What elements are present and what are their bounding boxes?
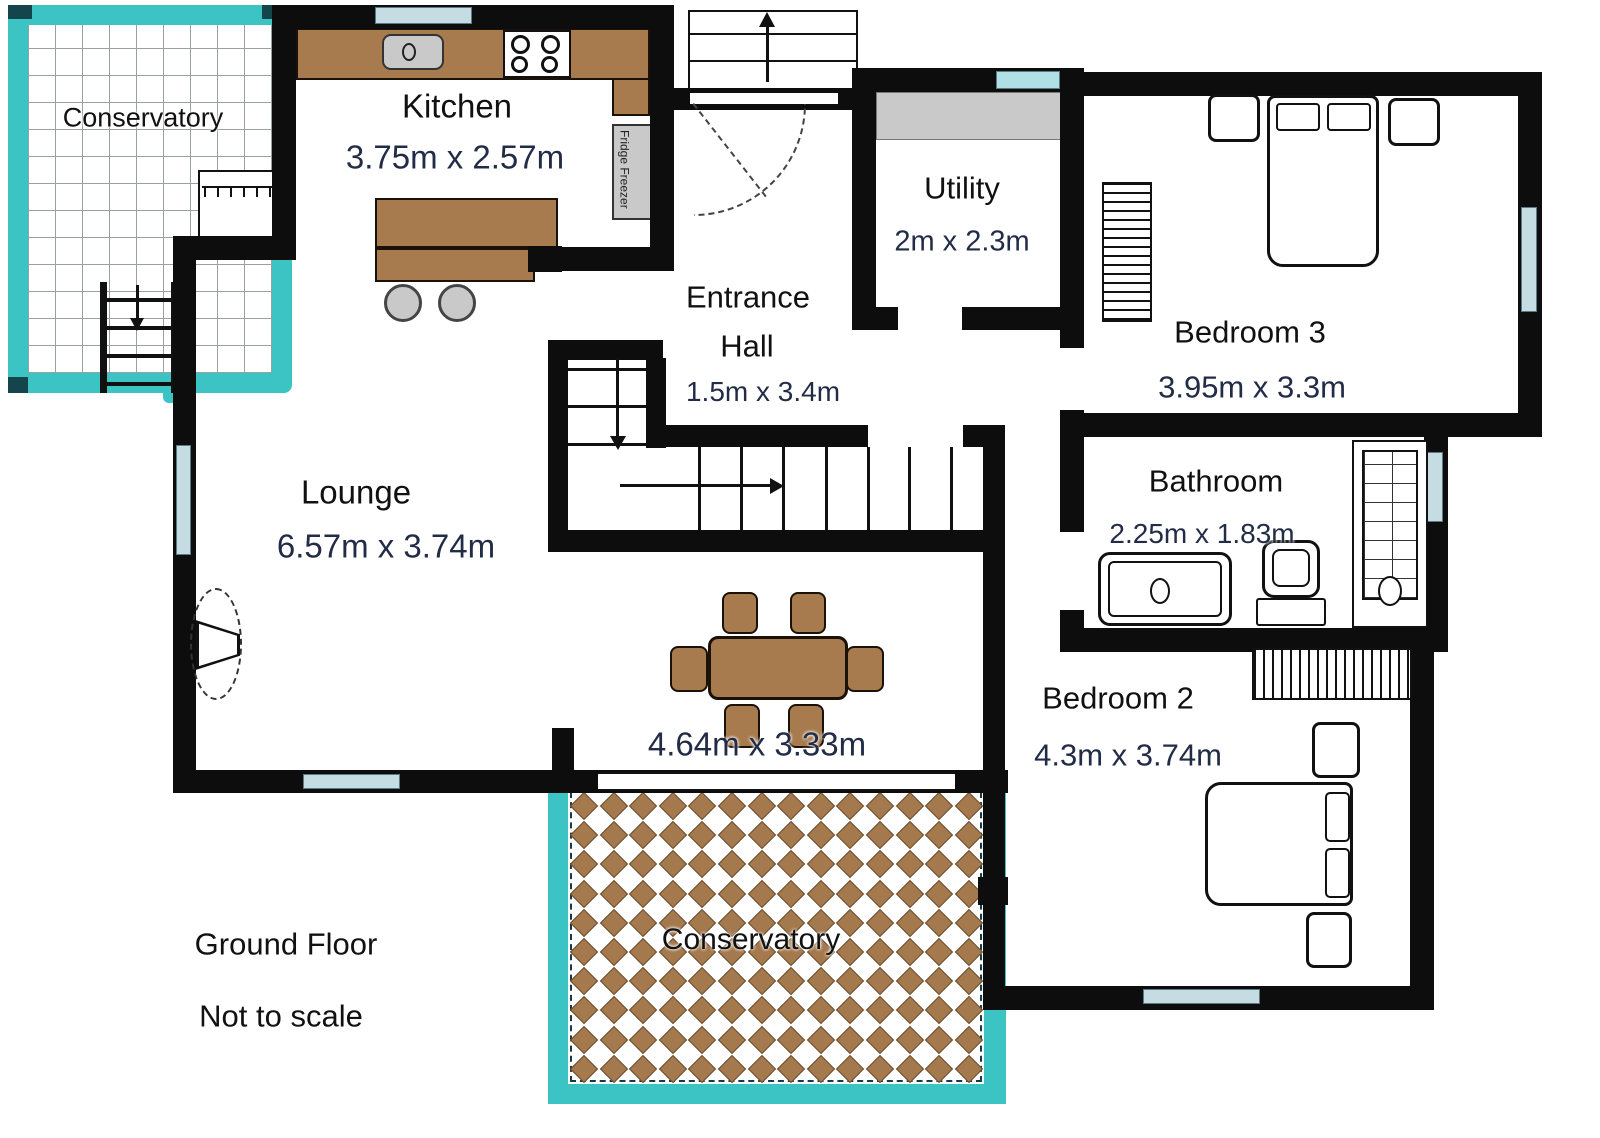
floor-diamond bbox=[777, 1025, 805, 1053]
stool bbox=[438, 284, 476, 322]
floor-diamond bbox=[955, 850, 983, 878]
wall bbox=[272, 5, 674, 29]
floor-diamond bbox=[836, 996, 864, 1024]
floor-diamond bbox=[777, 967, 805, 995]
room-dims-lounge: 6.57m x 3.74m bbox=[277, 530, 495, 563]
floor-diamond bbox=[718, 850, 746, 878]
floor-diamond bbox=[629, 996, 657, 1024]
stairs-down-arrow bbox=[616, 358, 619, 438]
stair-tread bbox=[568, 443, 646, 446]
room-label-conservatory-bottom: Conservatory bbox=[662, 925, 840, 955]
floor-diamond bbox=[688, 1055, 716, 1083]
room-label-bedroom3: Bedroom 3 bbox=[1174, 317, 1326, 348]
stair-tread bbox=[740, 447, 743, 530]
floor-diamond bbox=[807, 1025, 835, 1053]
floor-diamond bbox=[836, 967, 864, 995]
floor-diamond bbox=[955, 1025, 983, 1053]
floor-diamond bbox=[718, 792, 746, 820]
floor-diamond bbox=[895, 967, 923, 995]
room-dims-bedroom3: 3.95m x 3.3m bbox=[1158, 372, 1346, 403]
floor-diamond bbox=[866, 792, 894, 820]
floor-diamond bbox=[659, 821, 687, 849]
arrow-right-icon bbox=[770, 478, 784, 494]
window-bathroom bbox=[1427, 452, 1443, 522]
floor-diamond bbox=[599, 996, 627, 1024]
floor-diamond bbox=[599, 967, 627, 995]
patio-door-opening bbox=[598, 772, 955, 791]
floor-diamond bbox=[688, 821, 716, 849]
porch-tread bbox=[690, 33, 856, 35]
floor-diamond bbox=[688, 996, 716, 1024]
floor-diamond bbox=[599, 938, 627, 966]
floor-diamond bbox=[836, 1055, 864, 1083]
floor-diamond bbox=[570, 996, 598, 1024]
floor-diamond bbox=[866, 996, 894, 1024]
floor-diamond bbox=[807, 850, 835, 878]
room-label-bedroom2: Bedroom 2 bbox=[1042, 683, 1194, 714]
floor-diamond bbox=[629, 792, 657, 820]
dining-table bbox=[708, 636, 848, 700]
stair-tread bbox=[568, 405, 646, 408]
wall bbox=[646, 358, 666, 448]
floor-diamond bbox=[836, 879, 864, 907]
floor-diamond bbox=[629, 1025, 657, 1053]
floor-diamond bbox=[570, 909, 598, 937]
floor-diamond bbox=[895, 850, 923, 878]
floor-diamond bbox=[599, 909, 627, 937]
dining-chair bbox=[790, 592, 826, 634]
room-label-entrance: Entrance bbox=[686, 282, 810, 313]
frame-corner bbox=[8, 5, 32, 19]
floor-diamond bbox=[807, 792, 835, 820]
room-dims-utility: 2m x 2.3m bbox=[894, 228, 1029, 257]
bath-plug bbox=[1150, 578, 1170, 604]
floor-diamond bbox=[599, 821, 627, 849]
floor-diamond bbox=[659, 1025, 687, 1053]
pillow bbox=[1325, 792, 1350, 842]
wall bbox=[548, 340, 568, 552]
wall bbox=[1060, 410, 1084, 532]
front-door-slit bbox=[690, 93, 838, 104]
floor-diamond bbox=[955, 821, 983, 849]
frame-corner bbox=[8, 377, 28, 393]
floor-diamond bbox=[925, 938, 953, 966]
wall bbox=[1410, 652, 1434, 1010]
floor-diamond bbox=[807, 879, 835, 907]
window-lounge-bottom bbox=[303, 774, 400, 789]
arrow-down-icon bbox=[610, 436, 626, 450]
wall bbox=[852, 68, 876, 330]
floor-diamond bbox=[629, 879, 657, 907]
floor-diamond bbox=[570, 879, 598, 907]
room-label-lounge: Lounge bbox=[301, 476, 411, 509]
window-utility bbox=[996, 71, 1060, 89]
wall bbox=[528, 247, 674, 271]
floor-diamond bbox=[955, 909, 983, 937]
floor-diamond bbox=[895, 1025, 923, 1053]
floor-diamond bbox=[599, 792, 627, 820]
floor-diamond bbox=[659, 792, 687, 820]
floor-diamond bbox=[747, 821, 775, 849]
scale-note: Not to scale bbox=[199, 1001, 363, 1032]
floor-diamond bbox=[866, 909, 894, 937]
window-kitchen bbox=[375, 7, 472, 24]
stool bbox=[384, 284, 422, 322]
floor-diamond bbox=[777, 792, 805, 820]
wall bbox=[552, 728, 574, 793]
bedside-table bbox=[1208, 94, 1260, 142]
door-nub bbox=[978, 877, 1008, 905]
floor-diamond bbox=[866, 1025, 894, 1053]
wall bbox=[852, 307, 898, 330]
kitchen-island-lower bbox=[375, 248, 535, 282]
floor-diamond bbox=[570, 967, 598, 995]
floor-diamond bbox=[629, 909, 657, 937]
wall bbox=[548, 340, 663, 360]
floor-diamond bbox=[807, 821, 835, 849]
window-bedroom3 bbox=[1521, 207, 1537, 312]
doorway bbox=[868, 425, 963, 447]
floor-diamond bbox=[925, 850, 953, 878]
room-label-kitchen: Kitchen bbox=[402, 90, 512, 123]
floor-diamond bbox=[599, 1055, 627, 1083]
floor-diamond bbox=[895, 821, 923, 849]
floor-diamond bbox=[688, 1025, 716, 1053]
radiator bbox=[1252, 648, 1412, 700]
porch-tread bbox=[690, 60, 856, 62]
floor-diamond bbox=[659, 1055, 687, 1083]
room-dims-kitchen: 3.75m x 2.57m bbox=[346, 141, 564, 174]
floor-diamond bbox=[925, 996, 953, 1024]
floor-diamond bbox=[747, 1025, 775, 1053]
floor-diamond bbox=[570, 792, 598, 820]
room-label-bathroom: Bathroom bbox=[1149, 466, 1283, 497]
step-tread bbox=[100, 298, 178, 302]
window-lounge-left bbox=[176, 445, 191, 555]
floor-diamond bbox=[629, 967, 657, 995]
window-bedroom2 bbox=[1143, 989, 1260, 1004]
floor-diamond bbox=[895, 938, 923, 966]
floor-diamond bbox=[629, 850, 657, 878]
bedside-table bbox=[1388, 98, 1440, 146]
floor-diamond bbox=[866, 821, 894, 849]
floor-diamond bbox=[688, 792, 716, 820]
floor-diamond bbox=[747, 967, 775, 995]
floor-diamond bbox=[836, 1025, 864, 1053]
wall bbox=[1060, 72, 1542, 96]
radiator bbox=[1102, 182, 1152, 322]
room-dims-dining: 4.64m x 3.33m bbox=[648, 728, 866, 761]
stairs-right-arrow bbox=[620, 484, 772, 487]
floor-diamond bbox=[925, 967, 953, 995]
floor-diamond bbox=[807, 1055, 835, 1083]
floor-diamond bbox=[570, 1025, 598, 1053]
floor-diamond bbox=[955, 938, 983, 966]
floor-diamond bbox=[718, 1025, 746, 1053]
floor-diamond bbox=[807, 967, 835, 995]
floor-diamond bbox=[925, 909, 953, 937]
stair-tread bbox=[867, 447, 870, 530]
floor-diamond bbox=[836, 938, 864, 966]
wall bbox=[548, 530, 985, 552]
kitchen-counter-top bbox=[296, 28, 650, 80]
floor-diamond bbox=[747, 792, 775, 820]
floor-diamond bbox=[747, 1055, 775, 1083]
wall bbox=[272, 5, 296, 241]
kitchen-counter-right bbox=[612, 78, 650, 116]
floor-diamond bbox=[777, 1055, 805, 1083]
stair-tread bbox=[908, 447, 911, 530]
floor-diamond bbox=[895, 909, 923, 937]
floor-diamond bbox=[866, 850, 894, 878]
pillow bbox=[1325, 848, 1350, 898]
kitchen-island bbox=[375, 198, 558, 248]
shower-drain bbox=[1378, 576, 1402, 606]
steps-down-arrow bbox=[136, 285, 139, 319]
floor-diamond bbox=[895, 792, 923, 820]
pillow bbox=[1276, 103, 1320, 131]
stair-tread bbox=[568, 368, 646, 371]
floor-diamond bbox=[599, 850, 627, 878]
dining-chair bbox=[670, 646, 708, 692]
floor-diamond bbox=[659, 850, 687, 878]
floor-diamond bbox=[866, 1055, 894, 1083]
utility-counter bbox=[876, 92, 1066, 140]
floor-diamond bbox=[688, 967, 716, 995]
floor-diamond bbox=[777, 821, 805, 849]
floor-diamond bbox=[895, 879, 923, 907]
floor-diamond bbox=[718, 821, 746, 849]
floor-diamond bbox=[599, 879, 627, 907]
floor-diamond bbox=[688, 879, 716, 907]
room-dims-hall: 1.5m x 3.4m bbox=[686, 378, 840, 406]
floor-diamond bbox=[836, 909, 864, 937]
floor-diamond bbox=[866, 879, 894, 907]
floor-diamond bbox=[599, 1025, 627, 1053]
floor-diamond bbox=[659, 967, 687, 995]
wall bbox=[1084, 413, 1542, 437]
hob-burner bbox=[541, 56, 558, 73]
floor-diamond bbox=[688, 850, 716, 878]
floor-diamond bbox=[718, 879, 746, 907]
floor-diamond bbox=[570, 1055, 598, 1083]
bedside-table bbox=[1306, 912, 1352, 968]
floor-diamond bbox=[925, 821, 953, 849]
pillow bbox=[1327, 103, 1371, 131]
floor-plan: Fridge Freezer bbox=[0, 0, 1600, 1138]
room-label-conservatory-top: Conservatory bbox=[63, 105, 224, 132]
floor-diamond bbox=[570, 821, 598, 849]
floor-diamond bbox=[659, 996, 687, 1024]
stair-tread bbox=[950, 447, 953, 530]
wall bbox=[1060, 68, 1084, 348]
floor-diamond bbox=[836, 821, 864, 849]
step-tread bbox=[100, 382, 178, 386]
floor-diamond bbox=[747, 996, 775, 1024]
wall bbox=[650, 5, 674, 271]
fridge-freezer-label: Fridge Freezer bbox=[617, 130, 653, 218]
toilet-cistern bbox=[1256, 598, 1326, 626]
floor-diamond bbox=[866, 967, 894, 995]
floor-diamond bbox=[955, 1055, 983, 1083]
floor-diamond bbox=[955, 996, 983, 1024]
floor-diamond bbox=[777, 996, 805, 1024]
floor-diamond bbox=[925, 792, 953, 820]
floor-title: Ground Floor bbox=[195, 929, 378, 960]
floor-diamond bbox=[895, 996, 923, 1024]
hob-burner bbox=[511, 56, 528, 73]
floor-diamond bbox=[955, 967, 983, 995]
dining-chair bbox=[846, 646, 884, 692]
floor-diamond bbox=[747, 850, 775, 878]
room-label-utility: Utility bbox=[924, 173, 1000, 204]
floor-diamond bbox=[836, 850, 864, 878]
floor-diamond bbox=[659, 879, 687, 907]
floor-diamond bbox=[747, 879, 775, 907]
hob-burner bbox=[541, 35, 560, 54]
room-dims-bathroom: 2.25m x 1.83m bbox=[1109, 520, 1294, 548]
floor-diamond bbox=[807, 996, 835, 1024]
floor-diamond bbox=[925, 879, 953, 907]
floor-diamond bbox=[718, 967, 746, 995]
room-dims-bedroom2: 4.3m x 3.74m bbox=[1034, 740, 1222, 771]
floor-diamond bbox=[925, 1055, 953, 1083]
bedside-table bbox=[1312, 722, 1360, 778]
room-label-hall: Hall bbox=[720, 331, 773, 362]
sink-drain bbox=[402, 43, 416, 61]
toilet-seat bbox=[1272, 549, 1310, 587]
floor-diamond bbox=[925, 1025, 953, 1053]
arrow-up-icon bbox=[759, 12, 775, 27]
floor-diamond bbox=[836, 792, 864, 820]
floor-diamond bbox=[777, 850, 805, 878]
floor-diamond bbox=[570, 850, 598, 878]
floor-diamond bbox=[570, 938, 598, 966]
floor-diamond bbox=[718, 996, 746, 1024]
floor-diamond bbox=[955, 792, 983, 820]
floor-diamond bbox=[629, 821, 657, 849]
floor-diamond bbox=[629, 1055, 657, 1083]
arrow-down-icon bbox=[130, 318, 144, 331]
stair-tread bbox=[825, 447, 828, 530]
entry-up-arrow bbox=[766, 24, 769, 82]
stair-tread bbox=[698, 447, 701, 530]
floor-diamond bbox=[866, 938, 894, 966]
hob-burner bbox=[511, 35, 530, 54]
floor-diamond bbox=[895, 1055, 923, 1083]
floor-diamond bbox=[718, 1055, 746, 1083]
floor-diamond bbox=[777, 879, 805, 907]
step-tread bbox=[100, 354, 178, 358]
floor-diamond bbox=[629, 938, 657, 966]
dining-chair bbox=[722, 592, 758, 634]
